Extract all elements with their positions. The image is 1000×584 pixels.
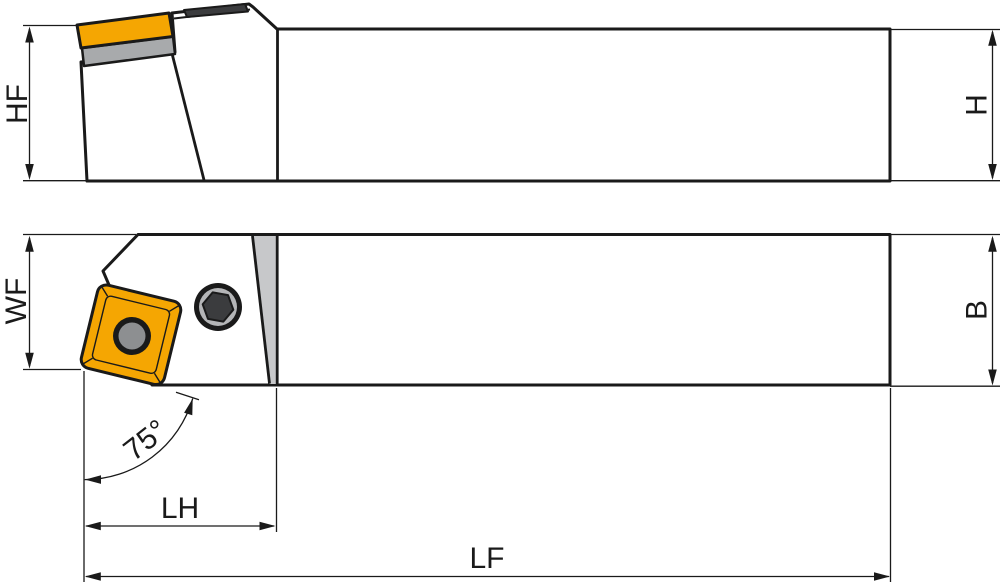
top-view bbox=[79, 235, 890, 387]
drawing-canvas: HF H WF B bbox=[0, 0, 1000, 584]
head-slant-edge bbox=[172, 54, 204, 181]
side-view bbox=[77, 4, 890, 181]
dimension-angle: 75° bbox=[85, 392, 199, 484]
dimension-label-wf: WF bbox=[0, 278, 33, 325]
dimension-label-b: B bbox=[961, 300, 994, 320]
dimension-label-hf: HF bbox=[1, 84, 34, 124]
side-view-body bbox=[81, 4, 890, 181]
insert-top bbox=[79, 283, 182, 386]
insert-hole bbox=[119, 323, 146, 350]
toolholder-drawing: HF H WF B bbox=[0, 0, 1000, 584]
dimension-lh: LH bbox=[85, 492, 276, 530]
dimension-label-angle: 75° bbox=[118, 414, 174, 468]
dimension-label-lf: LF bbox=[469, 542, 504, 575]
dimension-lf: LF bbox=[85, 542, 890, 581]
clamp-slot bbox=[184, 4, 248, 17]
hex-clamp-screw bbox=[194, 283, 242, 331]
dimension-label-h: H bbox=[961, 94, 994, 116]
dimension-hf: HF bbox=[1, 26, 87, 181]
dimension-label-lh: LH bbox=[161, 492, 199, 525]
dimension-b: B bbox=[890, 235, 1000, 387]
dimension-h: H bbox=[890, 30, 1000, 181]
